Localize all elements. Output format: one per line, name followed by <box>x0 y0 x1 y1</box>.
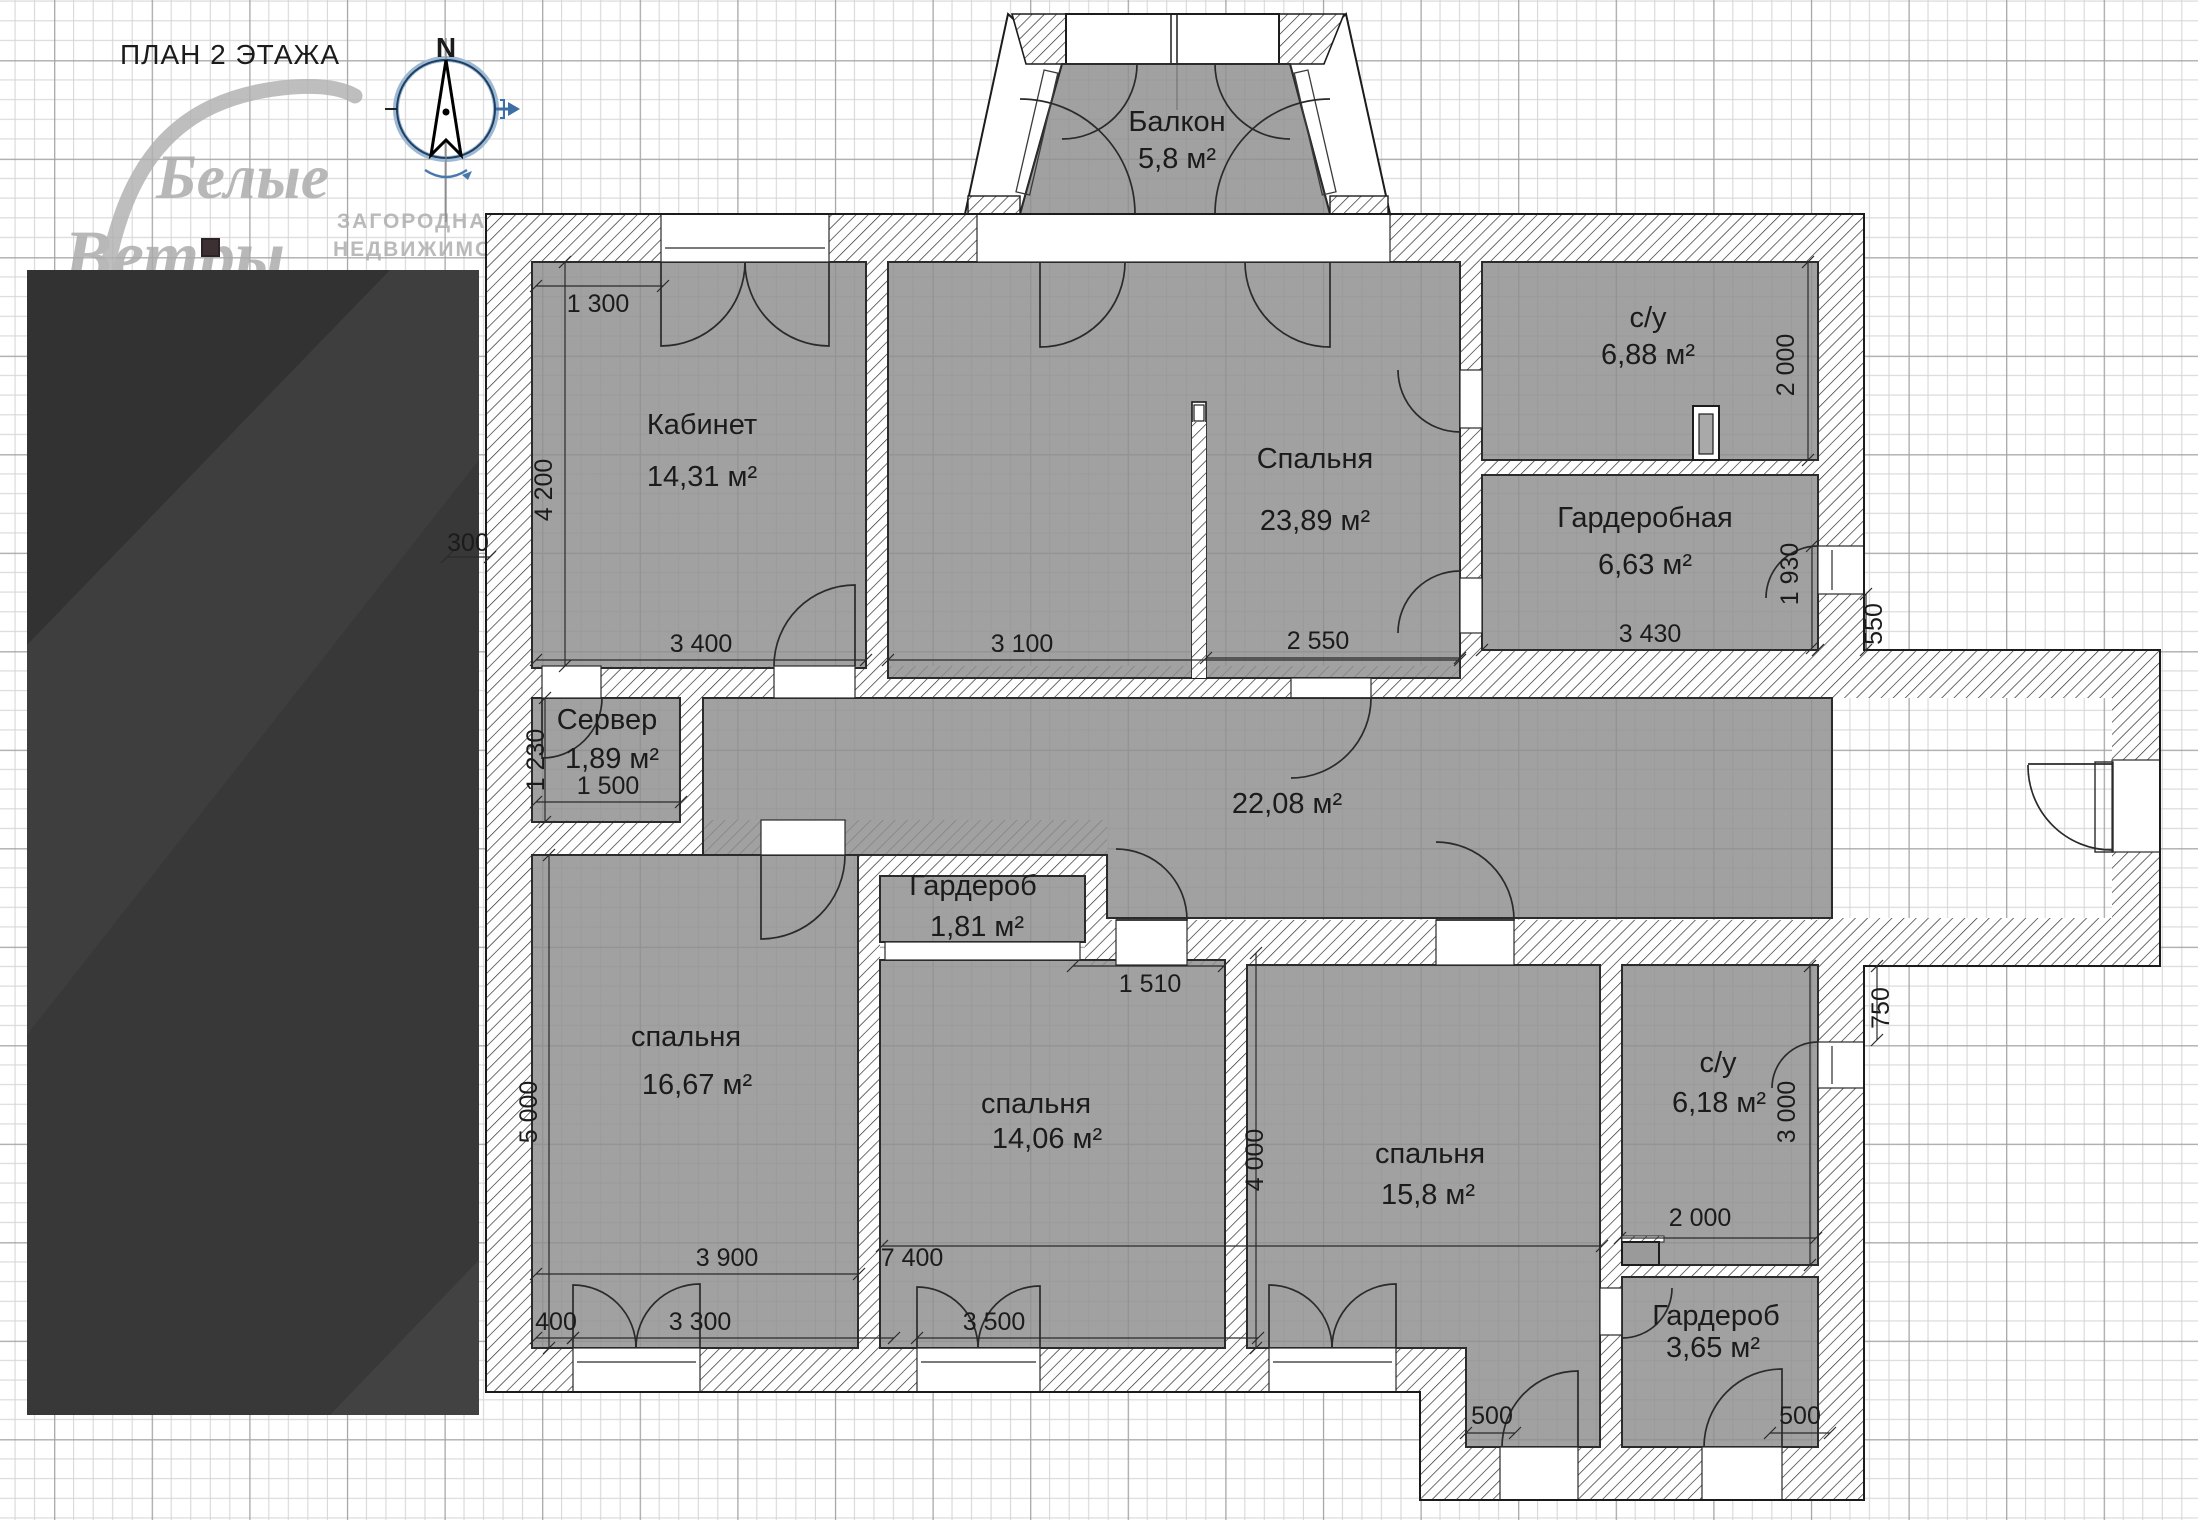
svg-text:спальня: спальня <box>631 1021 741 1053</box>
svg-text:3,65 м²: 3,65 м² <box>1666 1332 1760 1364</box>
svg-text:с/у: с/у <box>1699 1047 1737 1079</box>
svg-text:6,88 м²: 6,88 м² <box>1601 339 1695 371</box>
svg-text:3 300: 3 300 <box>669 1308 732 1336</box>
svg-text:1 300: 1 300 <box>567 290 630 318</box>
svg-text:500: 500 <box>1471 1402 1513 1430</box>
svg-text:ЗАГОРОДНАЯ: ЗАГОРОДНАЯ <box>337 210 503 233</box>
svg-text:1 510: 1 510 <box>1119 970 1182 998</box>
svg-text:3 430: 3 430 <box>1619 620 1682 648</box>
svg-text:Гардероб: Гардероб <box>909 870 1037 902</box>
svg-text:500: 500 <box>1779 1402 1821 1430</box>
svg-text:2 000: 2 000 <box>1669 1204 1732 1232</box>
svg-text:7 400: 7 400 <box>881 1244 944 1272</box>
svg-text:спальня: спальня <box>1375 1138 1485 1170</box>
svg-text:6,63 м²: 6,63 м² <box>1598 549 1692 581</box>
svg-text:3 100: 3 100 <box>991 630 1054 658</box>
svg-text:23,89 м²: 23,89 м² <box>1260 505 1371 537</box>
svg-text:300: 300 <box>447 529 489 557</box>
svg-text:4 000: 4 000 <box>1241 1129 1269 1192</box>
svg-text:1 230: 1 230 <box>522 729 550 792</box>
svg-text:Сервер: Сервер <box>557 704 658 736</box>
svg-text:2 550: 2 550 <box>1287 627 1350 655</box>
svg-text:14,06 м²: 14,06 м² <box>992 1123 1103 1155</box>
svg-text:550: 550 <box>1860 603 1888 645</box>
svg-text:5,8 м²: 5,8 м² <box>1138 143 1216 175</box>
svg-text:1 930: 1 930 <box>1776 543 1804 606</box>
svg-text:15,8 м²: 15,8 м² <box>1381 1179 1475 1211</box>
svg-text:Гардероб: Гардероб <box>1652 1300 1780 1332</box>
svg-text:Белые: Белые <box>155 141 329 212</box>
svg-text:спальня: спальня <box>981 1088 1091 1120</box>
svg-text:5 000: 5 000 <box>515 1081 543 1144</box>
svg-text:3 000: 3 000 <box>1773 1081 1801 1144</box>
svg-text:Балкон: Балкон <box>1128 106 1225 138</box>
svg-text:22,08 м²: 22,08 м² <box>1232 788 1343 820</box>
svg-text:N: N <box>436 32 456 63</box>
svg-text:1,81 м²: 1,81 м² <box>930 911 1024 943</box>
svg-text:3 900: 3 900 <box>696 1244 759 1272</box>
svg-text:750: 750 <box>1867 987 1895 1029</box>
svg-text:Гардеробная: Гардеробная <box>1557 502 1732 534</box>
svg-text:3 400: 3 400 <box>670 630 733 658</box>
svg-text:1 500: 1 500 <box>577 772 640 800</box>
svg-text:16,67 м²: 16,67 м² <box>642 1069 753 1101</box>
svg-text:с/у: с/у <box>1629 302 1667 334</box>
svg-text:400: 400 <box>535 1308 577 1336</box>
svg-text:Кабинет: Кабинет <box>647 409 757 441</box>
svg-text:Спальня: Спальня <box>1257 443 1374 475</box>
svg-text:3 500: 3 500 <box>963 1308 1026 1336</box>
svg-text:6,18 м²: 6,18 м² <box>1672 1087 1766 1119</box>
svg-text:14,31 м²: 14,31 м² <box>647 461 758 493</box>
svg-text:2 000: 2 000 <box>1772 334 1800 397</box>
svg-text:1,89 м²: 1,89 м² <box>565 743 659 775</box>
svg-text:4 200: 4 200 <box>530 459 558 522</box>
svg-text:ПЛАН 2 ЭТАЖА: ПЛАН 2 ЭТАЖА <box>120 39 340 70</box>
